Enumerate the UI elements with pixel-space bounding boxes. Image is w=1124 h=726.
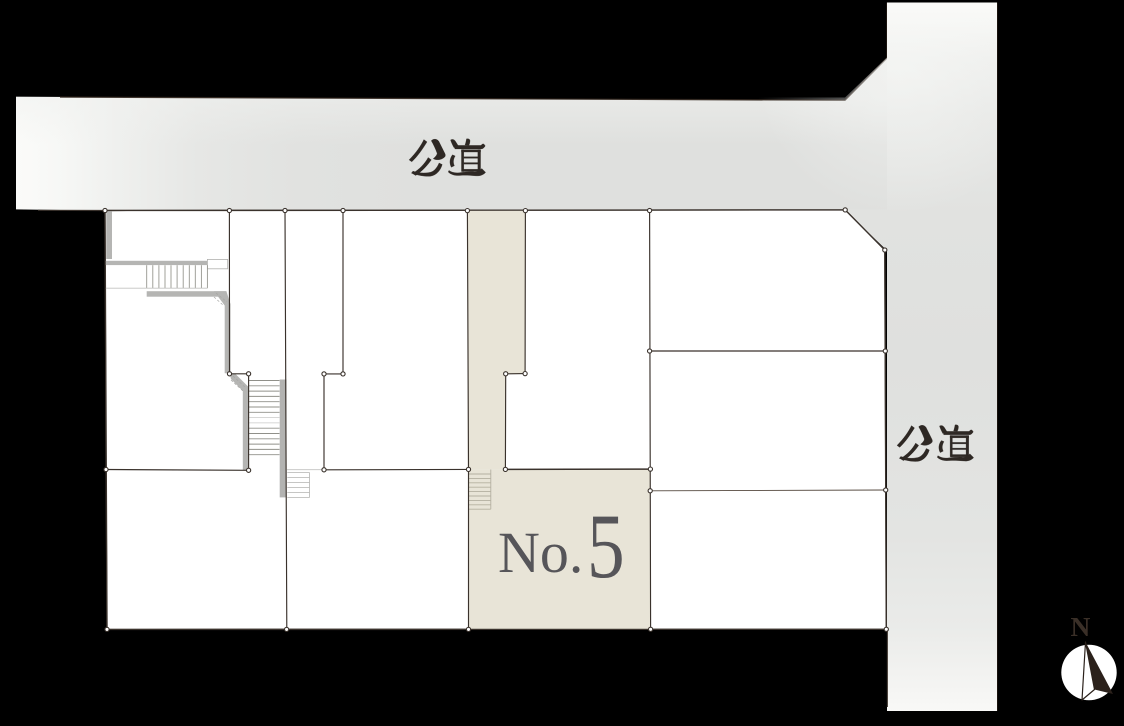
- svg-text:N: N: [1071, 611, 1091, 642]
- svg-text:No.: No.: [498, 520, 583, 585]
- svg-text:5: 5: [587, 496, 625, 598]
